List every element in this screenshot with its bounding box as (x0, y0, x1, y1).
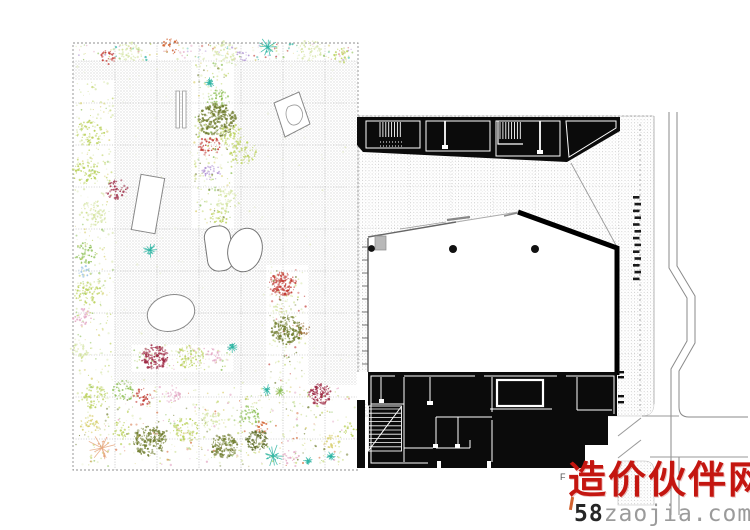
wall-foot (455, 444, 460, 448)
floor-plan-svg (0, 0, 750, 530)
garden-bench (176, 91, 180, 128)
column (449, 245, 457, 253)
crosswalk-marks (633, 223, 640, 226)
road-edge (677, 112, 748, 417)
door-gap (557, 374, 566, 378)
floor-plan-canvas: F 造价伙伴网 58zaojia.com (0, 0, 750, 530)
south-wing-annex (357, 400, 365, 468)
crosswalk-marks (635, 216, 642, 219)
wall-foot (537, 150, 543, 154)
crosswalk-marks (635, 271, 642, 274)
edge-mark (618, 371, 624, 373)
crosswalk-marks (635, 230, 642, 233)
road-edge (669, 112, 687, 515)
garden-bench (183, 91, 187, 128)
column (368, 245, 375, 252)
crosswalk-marks (633, 250, 640, 253)
crosswalk-marks (633, 278, 640, 281)
gap-cover (357, 372, 368, 402)
crosswalk-marks (635, 203, 642, 206)
wall-foot (433, 444, 438, 448)
crosswalk-marks (635, 244, 642, 247)
wall-foot (379, 399, 384, 403)
edge-mark (618, 401, 624, 403)
crosswalk-marks (633, 237, 640, 240)
door-slit (437, 461, 441, 469)
door-gap (395, 374, 404, 378)
watermark-url: 58zaojia.com (574, 503, 750, 526)
edge-mark (618, 395, 624, 397)
watermark-url-prefix: 58 (574, 501, 604, 527)
planting-bed-left (73, 80, 115, 385)
column (531, 245, 539, 253)
watermark-url-rest: zaojia.com (604, 501, 750, 527)
crosswalk-marks (633, 210, 640, 213)
wall-foot (442, 145, 448, 149)
plan-label: F (560, 472, 566, 482)
crosswalk-marks (633, 264, 640, 267)
door-slit (487, 461, 491, 469)
door-gap (475, 374, 484, 378)
crosswalk-marks (633, 196, 640, 199)
hall-entry (375, 236, 386, 250)
edge-mark (618, 376, 624, 378)
watermark-brand-cn: 造价伙伴网 (568, 461, 750, 499)
crosswalk-marks (635, 257, 642, 260)
wall-foot (427, 401, 433, 405)
garden-stone-core (286, 105, 303, 125)
ramp-mark (618, 418, 641, 436)
ramp-mark (618, 440, 641, 458)
